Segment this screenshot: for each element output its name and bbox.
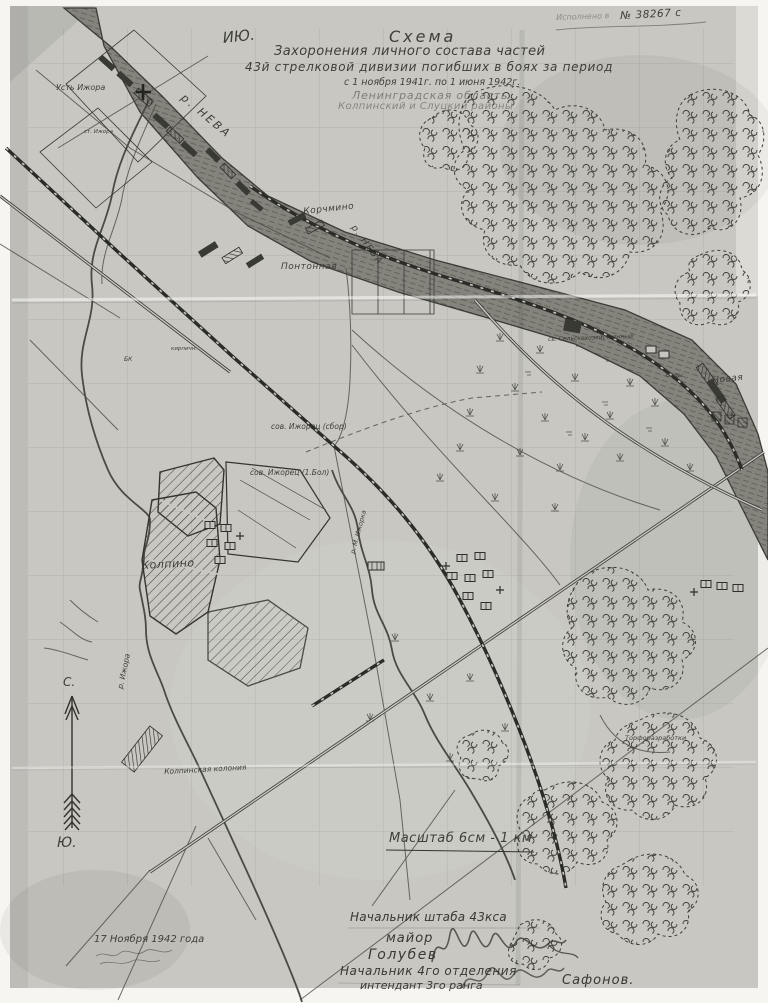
compass-south-label: Ю. (57, 836, 77, 850)
map-label-torf: Торфоразработки (625, 735, 686, 742)
map-title-districts: Колпинский и Слуцкий районы (338, 102, 513, 112)
date-note: 17 Ноября 1942 года (94, 935, 204, 945)
map-label-pontonnaya: Понтонная (281, 263, 337, 272)
map-title-region: Ленинградская область (352, 90, 508, 101)
map-label-izhorets-2: сов. Ижорец (1.Бол) (250, 469, 329, 477)
map-label-ust-izhora: Усть Ижора (56, 84, 105, 92)
map-scan: Исполнено в № 38267 с ИЮ. Схема Захороне… (0, 0, 768, 1003)
map-artwork (0, 0, 768, 1003)
signature-row-1: Начальник штаба 43кса (350, 911, 507, 923)
map-label-sady: Сады (666, 373, 683, 379)
map-title-line2: Захоронения личного состава частей (274, 45, 545, 58)
signature-row-5: интендант 3го ранга (360, 980, 483, 991)
map-title-line3: 43й стрелковой дивизии погибших в боях з… (245, 61, 613, 73)
signature-row-2: майор (386, 932, 433, 945)
map-label-izhorets-1: сов. Ижорец (сбор) (271, 423, 347, 431)
map-label-kolpino: Колпино (141, 557, 195, 571)
map-title-line4: с 1 ноября 1941г. по 1 июня 1942г. (344, 78, 520, 88)
map-label-kirpichny: кирпичн. (171, 347, 197, 353)
map-label-bk: БК (124, 357, 132, 363)
scale-text: Масштаб 6см - 1 км (389, 832, 532, 845)
signature-row-3: Голубев (368, 948, 438, 962)
corner-mark: ИЮ. (222, 28, 256, 46)
map-title-line1: Схема (389, 29, 456, 45)
compass-north-label: С. (63, 676, 75, 688)
signature-row-4: Начальник 4го отделения (340, 965, 517, 977)
map-label-st-izhora: ст. Ижора (84, 130, 113, 136)
signature-row-6: Сафонов. (562, 974, 634, 987)
